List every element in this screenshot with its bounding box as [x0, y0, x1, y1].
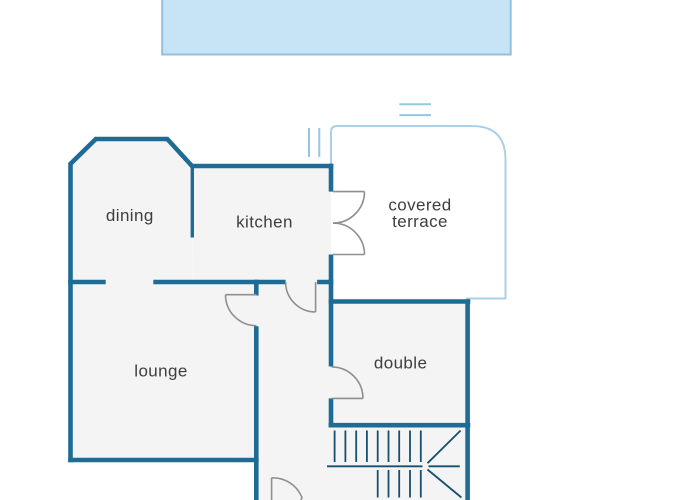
svg-text:terrace: terrace: [392, 212, 448, 231]
svg-text:kitchen: kitchen: [236, 213, 293, 232]
svg-text:lounge: lounge: [134, 362, 187, 381]
svg-text:double: double: [374, 354, 427, 373]
svg-text:dining: dining: [106, 206, 154, 225]
